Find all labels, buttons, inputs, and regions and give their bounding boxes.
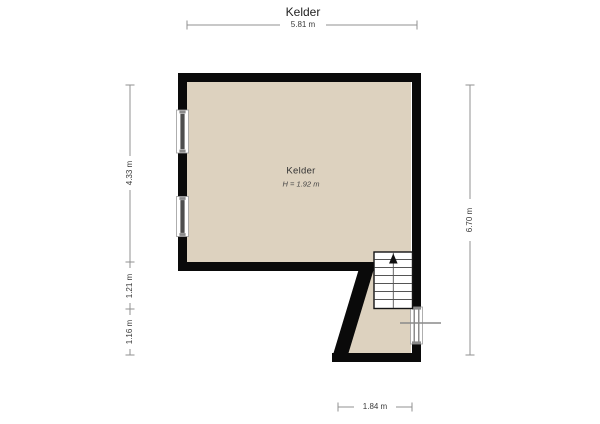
dimension-label-left-3: 1.16 m [124, 317, 136, 347]
extension-bottom-wall [332, 353, 421, 362]
stairs [374, 252, 413, 309]
dimension-label-left-1: 4.33 m [124, 158, 136, 188]
right-wall-upper [412, 73, 421, 307]
floorplan-canvas [0, 0, 600, 424]
dimension-label-left-2: 1.21 m [124, 270, 136, 300]
window-left-lower-icon [177, 197, 189, 237]
left-wall [178, 73, 187, 271]
top-wall [178, 73, 421, 82]
dimension-label-bottom: 1.84 m [360, 402, 390, 412]
room-floor [187, 82, 411, 353]
room-height-label: H = 1.92 m [283, 180, 320, 189]
bottom-wall-main [178, 262, 376, 271]
window-left-upper-icon [177, 110, 189, 153]
floorplan-page: Kelder 5.81 m 4.33 m 1.21 m 1.16 m 6.70 … [0, 0, 600, 424]
window-right-icon [411, 307, 423, 344]
dimension-label-right: 6.70 m [464, 205, 476, 235]
room-name-label: Kelder [286, 166, 315, 177]
page-title: Kelder [286, 5, 321, 19]
dimension-label-top: 5.81 m [288, 20, 318, 30]
